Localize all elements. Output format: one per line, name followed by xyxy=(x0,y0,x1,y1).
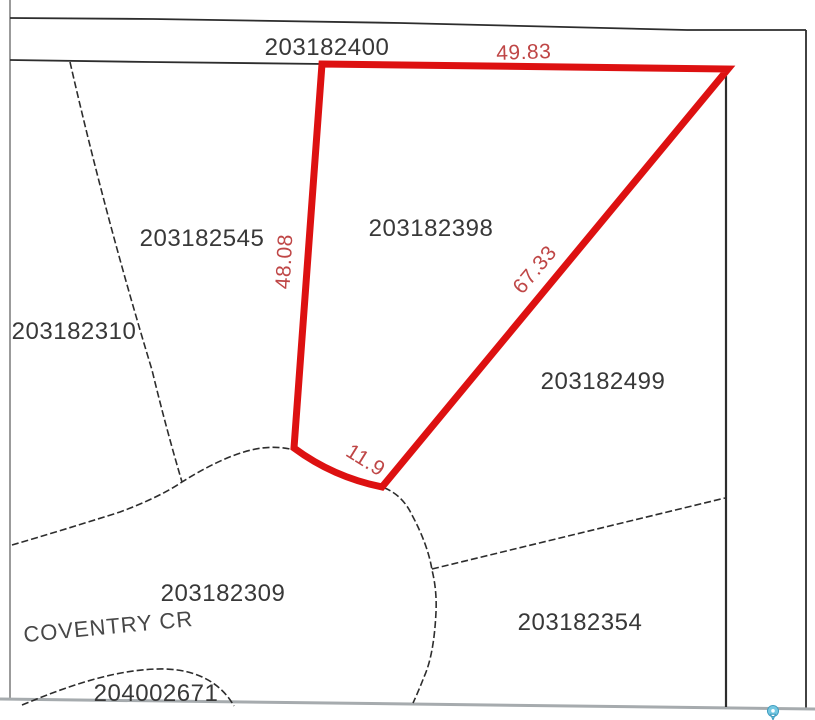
parcel-label-203182354: 203182354 xyxy=(518,609,643,636)
dimension-label-southeast: 67.33 xyxy=(509,241,562,298)
parcel-label-203182400: 203182400 xyxy=(265,34,390,61)
parcel-line-west-diagonal xyxy=(70,62,182,482)
parcel-label-203182310: 203182310 xyxy=(12,318,137,345)
dimension-label-north: 49.83 xyxy=(496,40,552,65)
parcel-label-204002671: 204002671 xyxy=(94,680,219,707)
parcel-map-svg[interactable]: 203182400 203182545 203182310 203182398 … xyxy=(0,0,815,720)
parcel-label-203182398: 203182398 xyxy=(369,215,494,242)
parcel-map[interactable]: 203182400 203182545 203182310 203182398 … xyxy=(0,0,815,720)
parcel-label-203182545: 203182545 xyxy=(140,225,265,252)
map-pin-icon xyxy=(767,706,778,720)
parcel-label-203182499: 203182499 xyxy=(541,368,666,395)
street-label-coventry-cr: COVENTRY CR xyxy=(22,606,194,647)
highlighted-parcel-boundary-203182398[interactable] xyxy=(294,64,728,487)
parcel-line-top xyxy=(10,18,806,30)
dimension-label-west: 48.08 xyxy=(272,234,298,290)
parcel-line-southeast-diagonal xyxy=(432,498,725,569)
parcel-label-203182309: 203182309 xyxy=(161,580,286,607)
